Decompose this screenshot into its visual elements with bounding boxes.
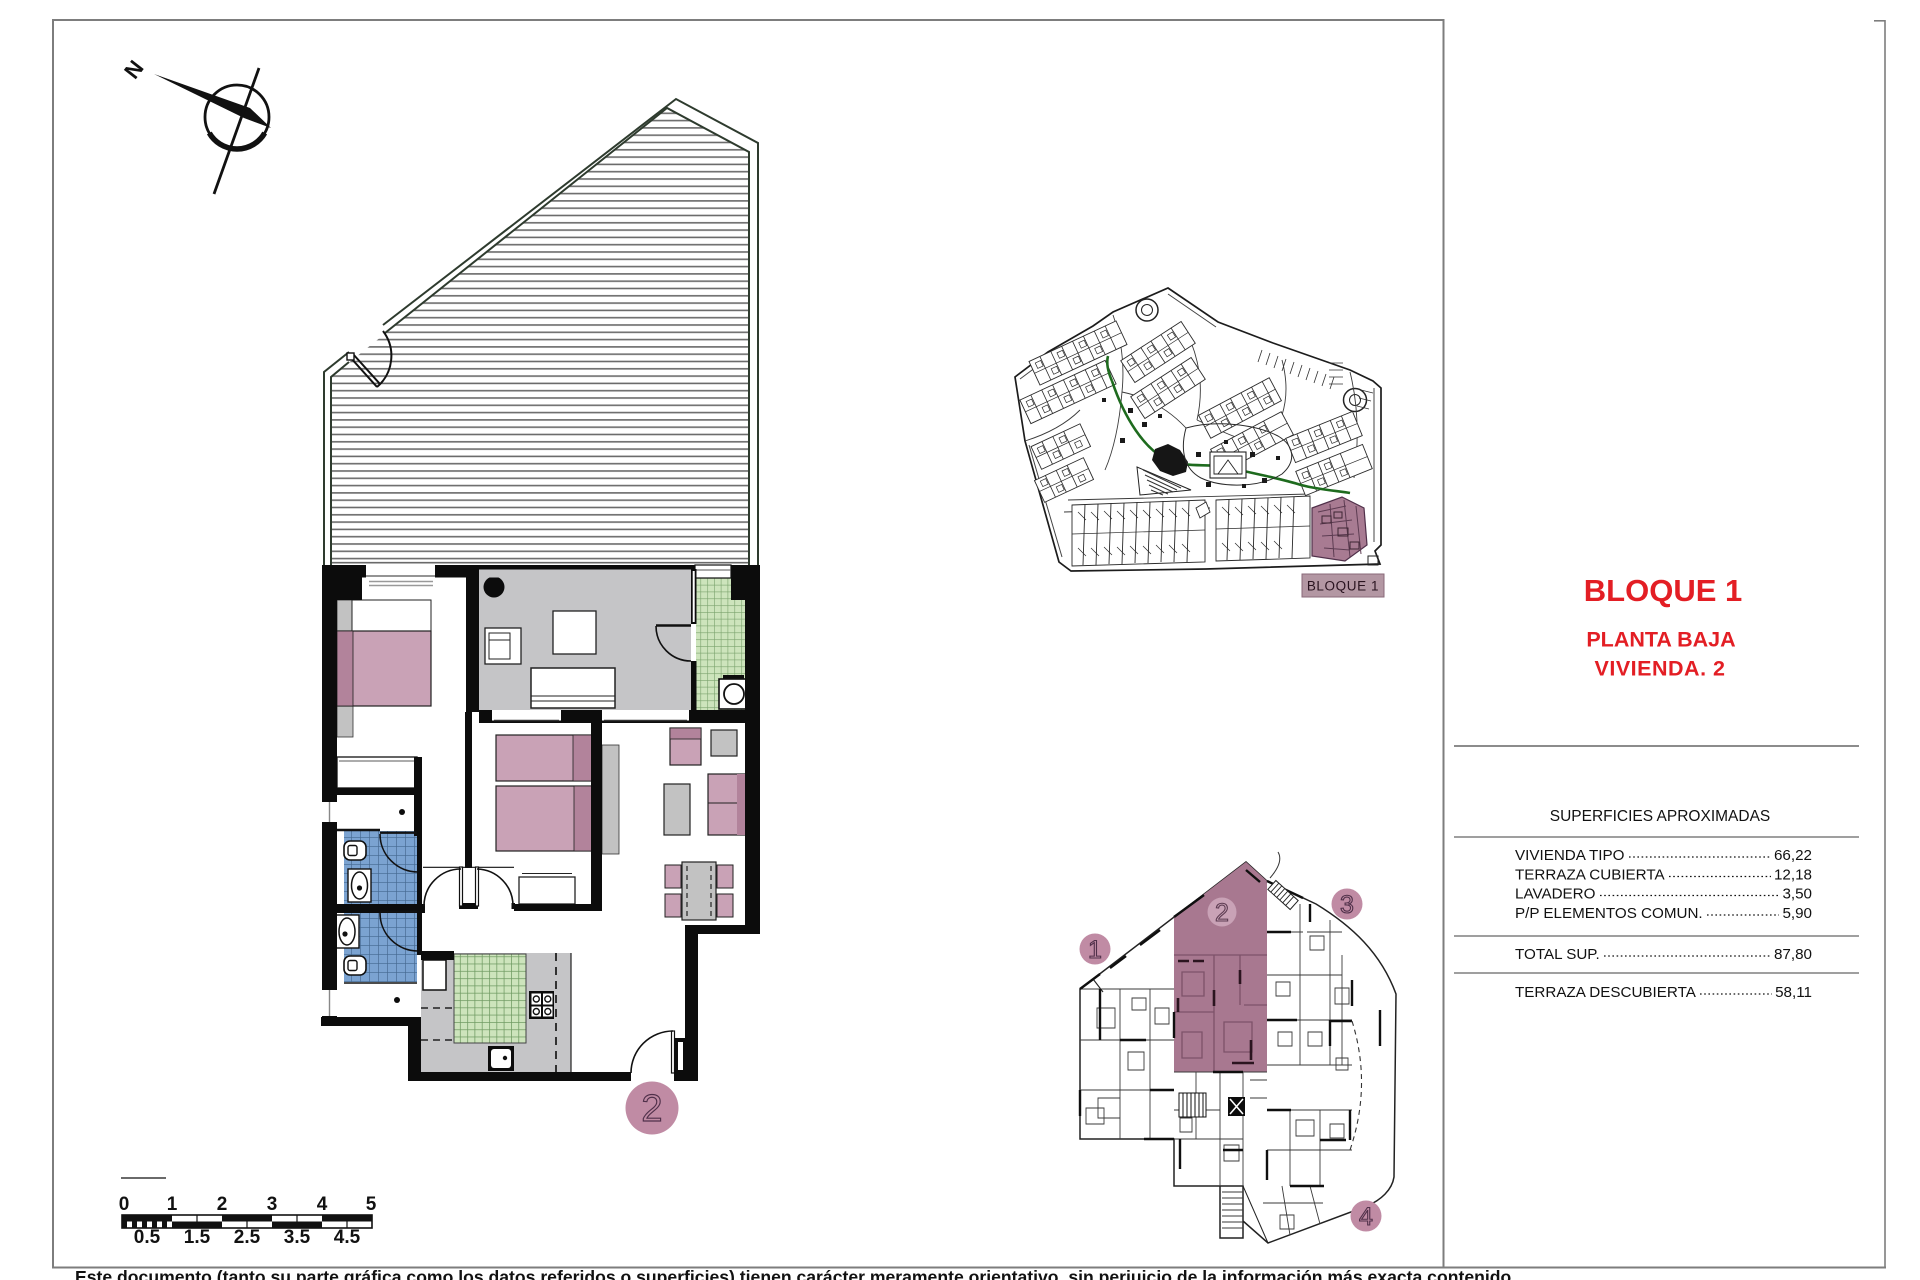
svg-text:PLANTA BAJA: PLANTA BAJA xyxy=(1586,628,1735,652)
svg-text:2: 2 xyxy=(1215,899,1229,927)
svg-text:3: 3 xyxy=(267,1194,278,1215)
svg-text:5: 5 xyxy=(366,1194,377,1215)
svg-text:TOTAL SUP.: TOTAL SUP. xyxy=(1515,946,1600,963)
svg-text:4: 4 xyxy=(1359,1203,1373,1231)
svg-text:4: 4 xyxy=(317,1194,328,1215)
svg-text:VIVIENDA TIPO: VIVIENDA TIPO xyxy=(1515,847,1625,864)
svg-text:1.5: 1.5 xyxy=(184,1227,211,1248)
svg-text:SUPERFICIES APROXIMADAS: SUPERFICIES APROXIMADAS xyxy=(1550,808,1771,825)
svg-text:BLOQUE 1: BLOQUE 1 xyxy=(1307,579,1379,594)
svg-text:2.5: 2.5 xyxy=(234,1227,261,1248)
svg-text:5,90: 5,90 xyxy=(1782,905,1812,922)
svg-text:4.5: 4.5 xyxy=(334,1227,361,1248)
svg-text:P/P ELEMENTOS COMUN.: P/P ELEMENTOS COMUN. xyxy=(1515,905,1703,922)
svg-text:1: 1 xyxy=(167,1194,178,1215)
svg-text:2: 2 xyxy=(641,1088,662,1130)
svg-text:LAVADERO: LAVADERO xyxy=(1515,886,1596,903)
svg-text:66,22: 66,22 xyxy=(1774,847,1812,864)
svg-text:1: 1 xyxy=(1088,936,1102,964)
svg-text:87,80: 87,80 xyxy=(1774,946,1812,963)
svg-text:0: 0 xyxy=(119,1194,130,1215)
svg-text:TERRAZA CUBIERTA: TERRAZA CUBIERTA xyxy=(1515,867,1666,884)
svg-text:3: 3 xyxy=(1340,891,1354,919)
svg-text:Este documento (tanto su parte: Este documento (tanto su parte gráfica c… xyxy=(75,1267,1511,1280)
svg-text:N: N xyxy=(119,56,148,84)
svg-text:12,18: 12,18 xyxy=(1774,867,1812,884)
svg-text:58,11: 58,11 xyxy=(1775,984,1812,1001)
svg-text:TERRAZA DESCUBIERTA: TERRAZA DESCUBIERTA xyxy=(1515,984,1697,1001)
svg-text:3.5: 3.5 xyxy=(284,1227,311,1248)
svg-text:BLOQUE 1: BLOQUE 1 xyxy=(1584,573,1742,608)
svg-text:2: 2 xyxy=(217,1194,228,1215)
svg-text:VIVIENDA. 2: VIVIENDA. 2 xyxy=(1595,657,1726,681)
svg-text:0.5: 0.5 xyxy=(134,1227,161,1248)
svg-text:3,50: 3,50 xyxy=(1782,886,1812,903)
